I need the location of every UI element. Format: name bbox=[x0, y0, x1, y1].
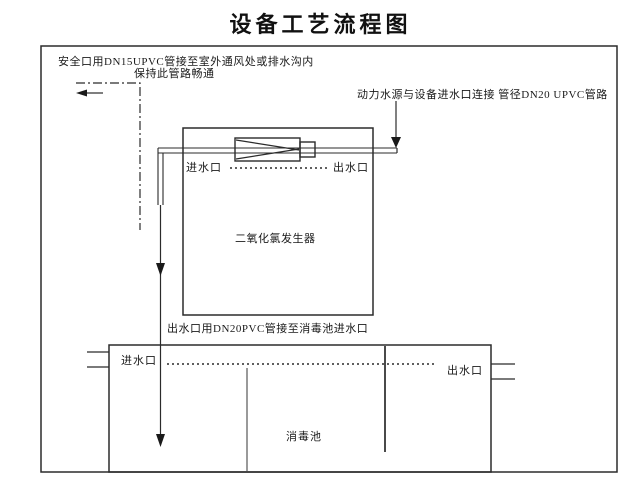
safety-vent-centerline bbox=[76, 83, 140, 230]
generator-inlet-label: 进水口 bbox=[186, 162, 222, 174]
generator-outlet-label: 出水口 bbox=[333, 162, 369, 174]
pool-inlet-label: 进水口 bbox=[121, 355, 157, 367]
process-flow-diagram: 设备工艺流程图 bbox=[0, 0, 641, 486]
safety-vent-arrow-left-icon bbox=[76, 90, 87, 97]
pool-outlet-label: 出水口 bbox=[447, 365, 483, 377]
pool-label: 消毒池 bbox=[286, 431, 322, 443]
outlet-pipe-note: 出水口用DN20PVC管接至消毒池进水口 bbox=[167, 323, 368, 335]
supply-note: 动力水源与设备进水口连接 管径DN20 UPVC管路 bbox=[357, 89, 608, 101]
ejector-outlet-fitting bbox=[300, 142, 315, 157]
generator-box bbox=[183, 128, 373, 315]
ejector-diagonal-bottom bbox=[236, 149, 299, 159]
flow-arrow-bottom-icon bbox=[156, 434, 165, 447]
diagram-canvas bbox=[0, 0, 641, 486]
supply-arrow-down-icon bbox=[391, 137, 401, 148]
flow-arrow-mid-icon bbox=[156, 263, 165, 276]
safety-note-line2: 保持此管路畅通 bbox=[134, 68, 215, 80]
safety-note-line1: 安全口用DN15UPVC管接至室外通风处或排水沟内 bbox=[58, 56, 314, 68]
generator-label: 二氧化氯发生器 bbox=[235, 233, 316, 245]
diagram-border bbox=[41, 46, 617, 472]
